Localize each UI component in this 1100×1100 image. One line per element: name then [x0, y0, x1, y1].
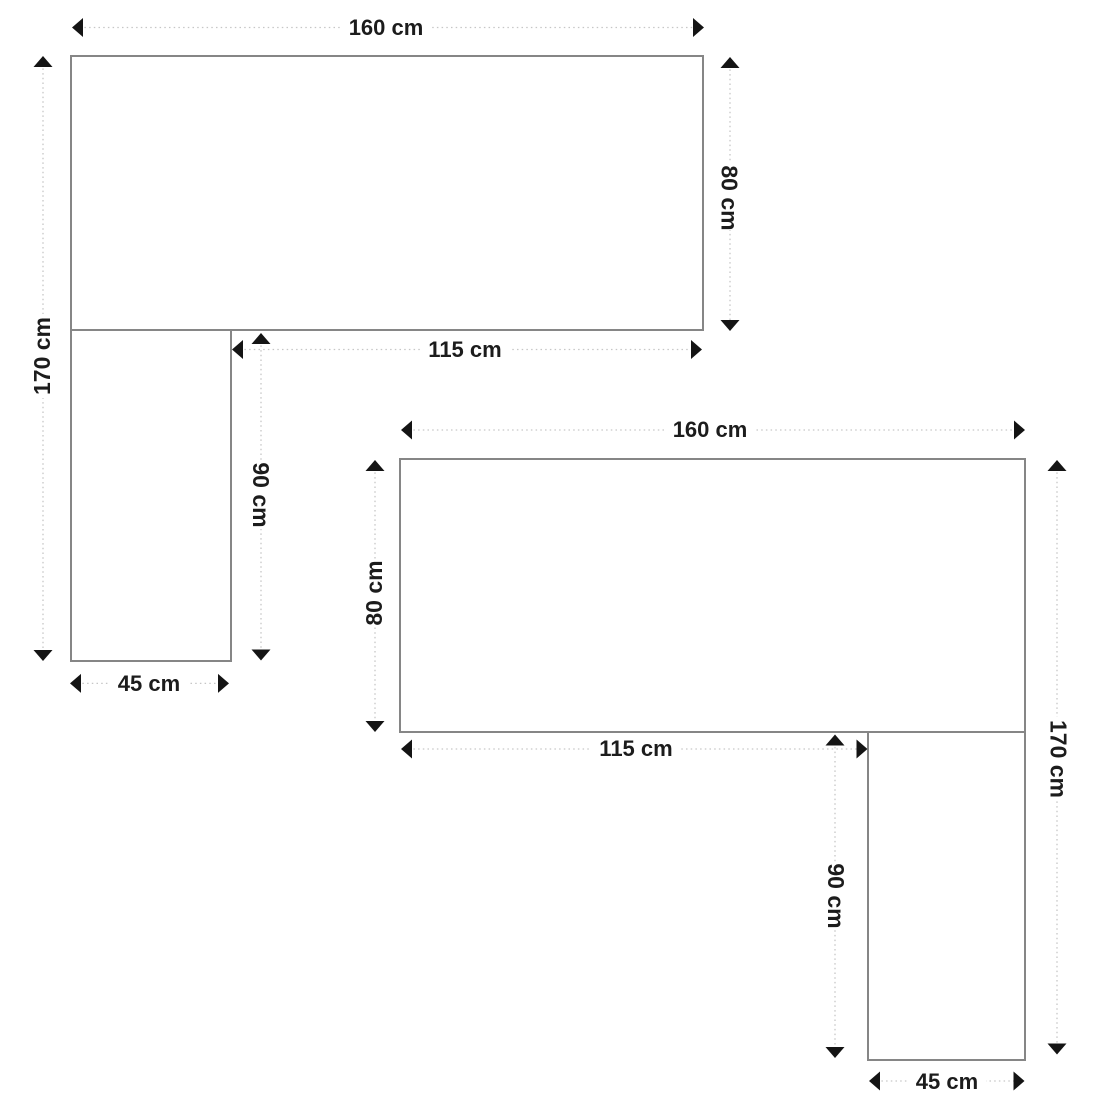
svg-text:115 cm: 115 cm — [428, 337, 501, 362]
svg-text:80 cm: 80 cm — [361, 560, 387, 625]
svg-text:170 cm: 170 cm — [29, 317, 55, 395]
svg-text:115 cm: 115 cm — [599, 736, 672, 761]
svg-text:160 cm: 160 cm — [673, 417, 748, 442]
svg-text:45 cm: 45 cm — [118, 671, 180, 696]
svg-text:160 cm: 160 cm — [349, 15, 424, 40]
svg-text:45 cm: 45 cm — [916, 1069, 978, 1094]
svg-text:170 cm: 170 cm — [1046, 720, 1072, 798]
svg-text:90 cm: 90 cm — [823, 863, 849, 928]
svg-text:90 cm: 90 cm — [248, 462, 274, 527]
svg-text:80 cm: 80 cm — [717, 165, 743, 230]
